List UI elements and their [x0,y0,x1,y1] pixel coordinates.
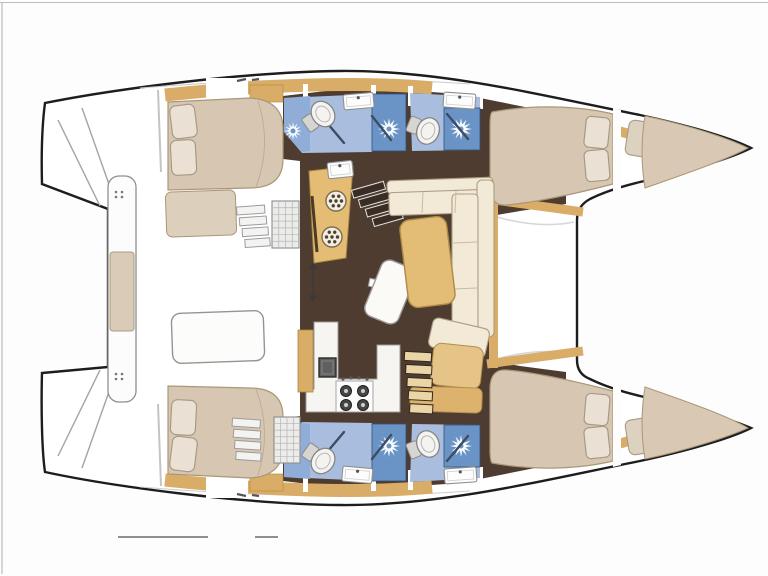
nav-seat [430,343,484,390]
catamaran-floor-plan [0,0,768,576]
pillow [584,149,611,182]
stove-burner-icon [341,400,352,411]
salon-table [399,215,456,308]
galley-fwd-sink [327,160,354,179]
stove-burner-icon [341,386,352,397]
deck-hatch-top [206,78,248,100]
pillow [169,104,198,140]
stove-burner-icon [358,386,369,397]
bulkhead-port [613,108,621,196]
aft-bench-cushion [110,252,134,331]
washbasin-icon [343,92,374,110]
pillow [584,393,611,426]
hob-ring-icon [326,191,346,211]
floor-plan-canvas [0,0,768,576]
pillow [583,116,610,149]
sofa-seat-right [452,194,478,337]
seat-port-aft [165,190,237,237]
pillow [170,399,197,435]
sofa-back-right [477,180,494,337]
deck-cleat [252,495,259,496]
hob-ring-icon [322,227,342,247]
deck-cleat [252,79,259,80]
guest-berth-stbd [171,310,265,363]
pillow [170,139,197,175]
stove-burner-icon [358,400,369,411]
galley-aft-cabinet [298,330,313,392]
washbasin-icon [342,466,373,484]
pillow [583,426,610,459]
fridge-grate-stbd [274,417,300,463]
washbasin-icon [443,92,476,109]
washbasin-icon [444,467,477,484]
fridge-grate-port [272,201,299,248]
bulkhead-stbd [613,379,621,467]
pillow [169,436,198,473]
bow-locker-port [642,116,748,188]
